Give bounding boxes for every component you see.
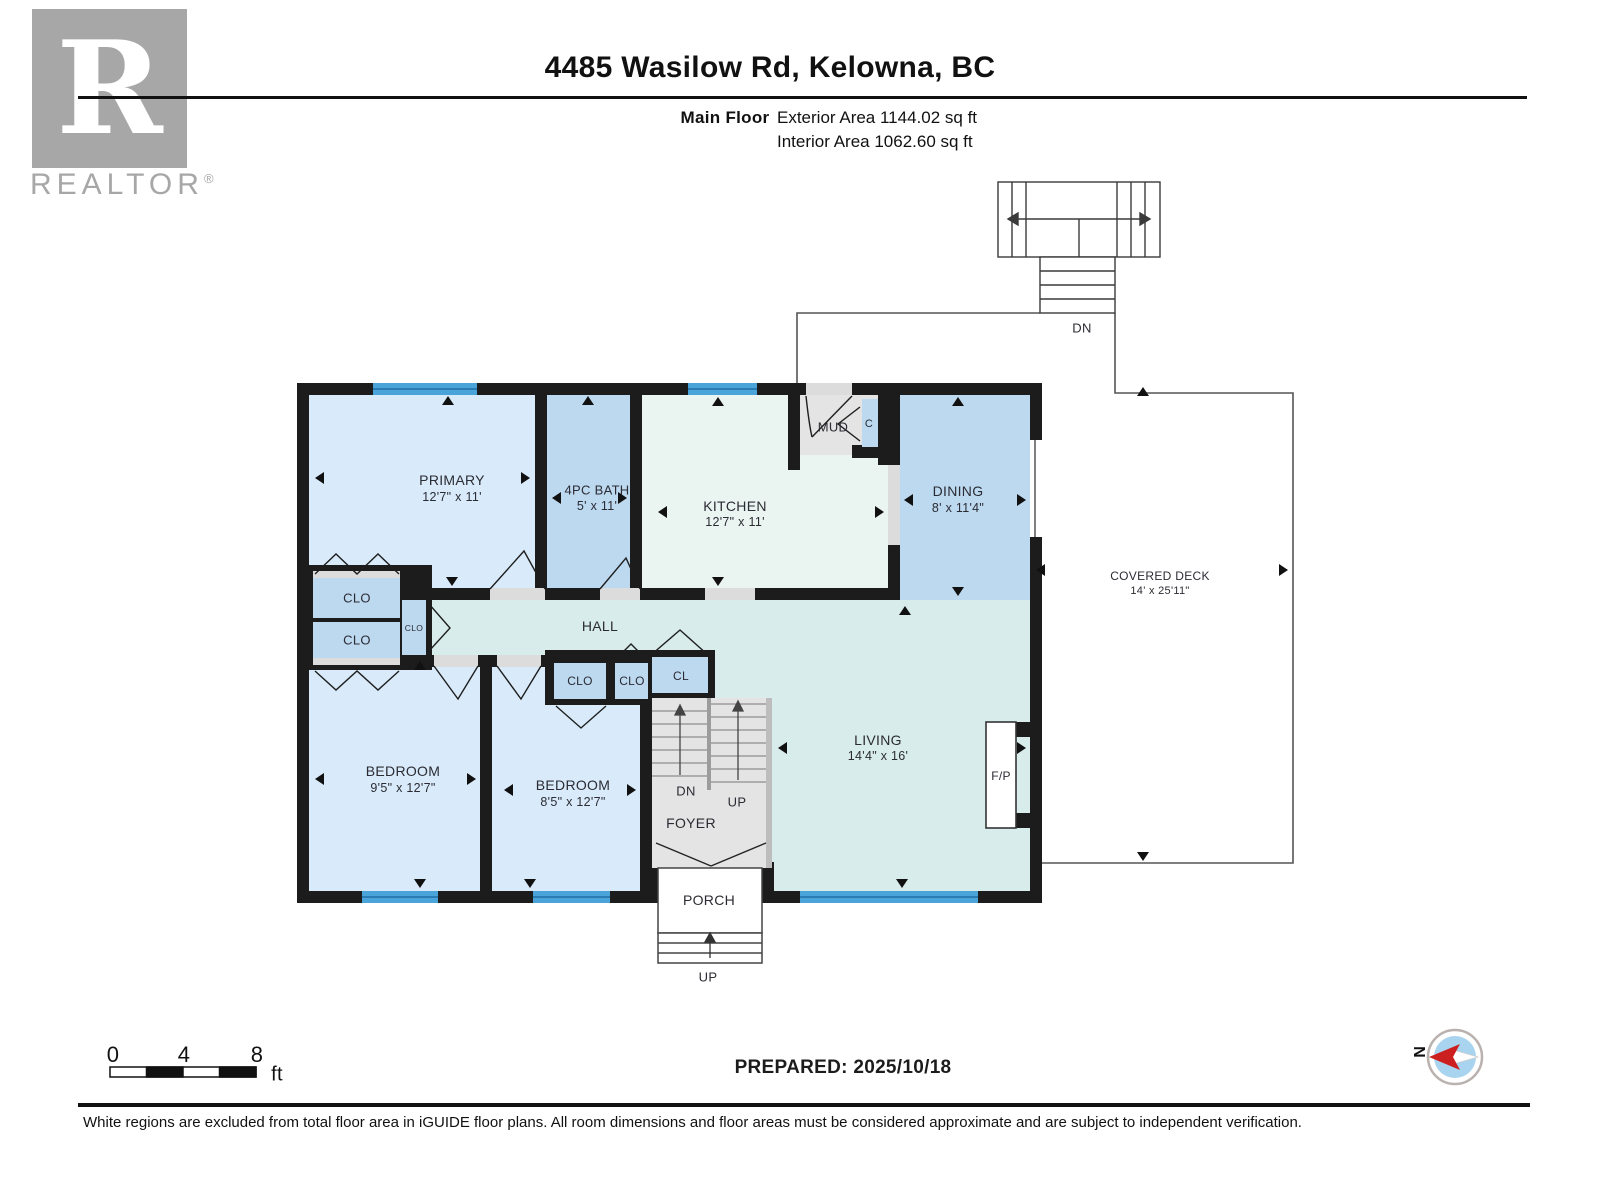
realtor-logo: R — [32, 9, 187, 168]
scale-unit: ft — [271, 1064, 283, 1087]
bedroom2-dims: 8'5" x 12'7" — [540, 795, 605, 809]
foyer-label: FOYER — [666, 815, 716, 831]
deck-dims: 14' x 25'11" — [1130, 585, 1189, 597]
clo-small-label: CLO — [405, 623, 423, 633]
mud-closet-label: C — [865, 418, 873, 430]
bedroom2-label: BEDROOM — [536, 777, 610, 793]
page-title: 4485 Wasilow Rd, Kelowna, BC — [545, 51, 996, 85]
compass-north-label: N — [1409, 1046, 1427, 1058]
living-dims: 14'4" x 16' — [848, 749, 908, 763]
porch-up-label: UP — [699, 970, 718, 985]
bath-dims: 5' x 11' — [577, 499, 617, 513]
stairs-dn-label: DN — [676, 784, 695, 799]
porch-label: PORCH — [683, 892, 735, 908]
interior-area: Interior Area 1062.60 sq ft — [777, 132, 973, 152]
compass-icon — [1428, 1030, 1482, 1084]
bedroom1-label: BEDROOM — [366, 763, 440, 779]
deck-dn-label: DN — [1072, 321, 1091, 336]
room-bedroom1 — [309, 667, 480, 891]
registered-mark: ® — [204, 171, 214, 186]
hall-label: HALL — [582, 618, 618, 634]
clo-a-label: CLO — [567, 674, 593, 688]
clo1-label: CLO — [343, 591, 371, 606]
disclaimer-text: White regions are excluded from total fl… — [83, 1114, 1302, 1131]
bath-label: 4PC BATH — [564, 483, 629, 498]
mud-label: MUD — [818, 420, 849, 435]
scale-bar — [110, 1067, 256, 1077]
dining-label: DINING — [933, 483, 984, 499]
porch — [658, 868, 762, 963]
clo-b-label: CLO — [619, 674, 645, 688]
deck-label: COVERED DECK — [1110, 569, 1210, 583]
exterior-area: Exterior Area 1144.02 sq ft — [777, 108, 977, 128]
kitchen-label: KITCHEN — [703, 498, 767, 514]
cl-label: CL — [673, 669, 689, 683]
scale-tick-0: 0 — [107, 1042, 120, 1068]
kitchen-dims: 12'7" x 11' — [705, 515, 765, 529]
realtor-logo-letter: R — [56, 25, 162, 153]
header-divider — [78, 96, 1527, 99]
deck-glass-door — [1030, 440, 1042, 537]
scale-tick-8: 8 — [251, 1042, 264, 1068]
primary-dims: 12'7" x 11' — [422, 490, 482, 504]
stairs-up-label: UP — [728, 795, 747, 810]
scale-tick-4: 4 — [178, 1042, 191, 1068]
prepared-date: PREPARED: 2025/10/18 — [735, 1057, 952, 1079]
fireplace-label: F/P — [991, 769, 1011, 783]
interior-stairs — [652, 698, 772, 868]
floor-label: Main Floor — [681, 108, 770, 128]
primary-label: PRIMARY — [419, 472, 485, 488]
living-label: LIVING — [854, 732, 902, 748]
footer-divider — [78, 1103, 1530, 1107]
deck-stairs — [998, 182, 1160, 313]
dining-dims: 8' x 11'4" — [932, 501, 984, 515]
bedroom1-dims: 9'5" x 12'7" — [370, 781, 435, 795]
realtor-wordmark: REALTOR® — [30, 168, 200, 202]
clo2-label: CLO — [343, 633, 371, 648]
floor-plan-canvas — [0, 0, 1600, 1200]
